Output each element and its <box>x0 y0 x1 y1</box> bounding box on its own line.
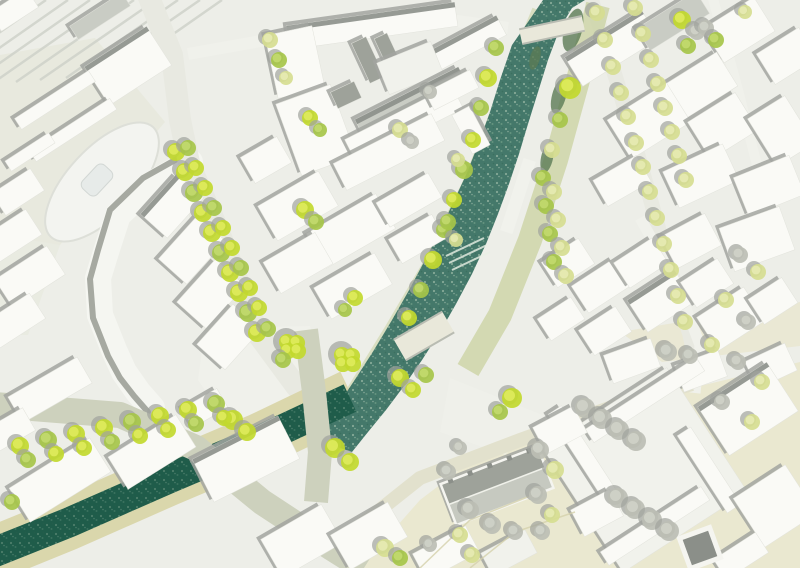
road-river-end-street <box>306 330 320 502</box>
masterplan-site-plan <box>0 0 800 568</box>
site-plan-svg <box>0 0 800 568</box>
framed-square-building <box>679 527 720 568</box>
